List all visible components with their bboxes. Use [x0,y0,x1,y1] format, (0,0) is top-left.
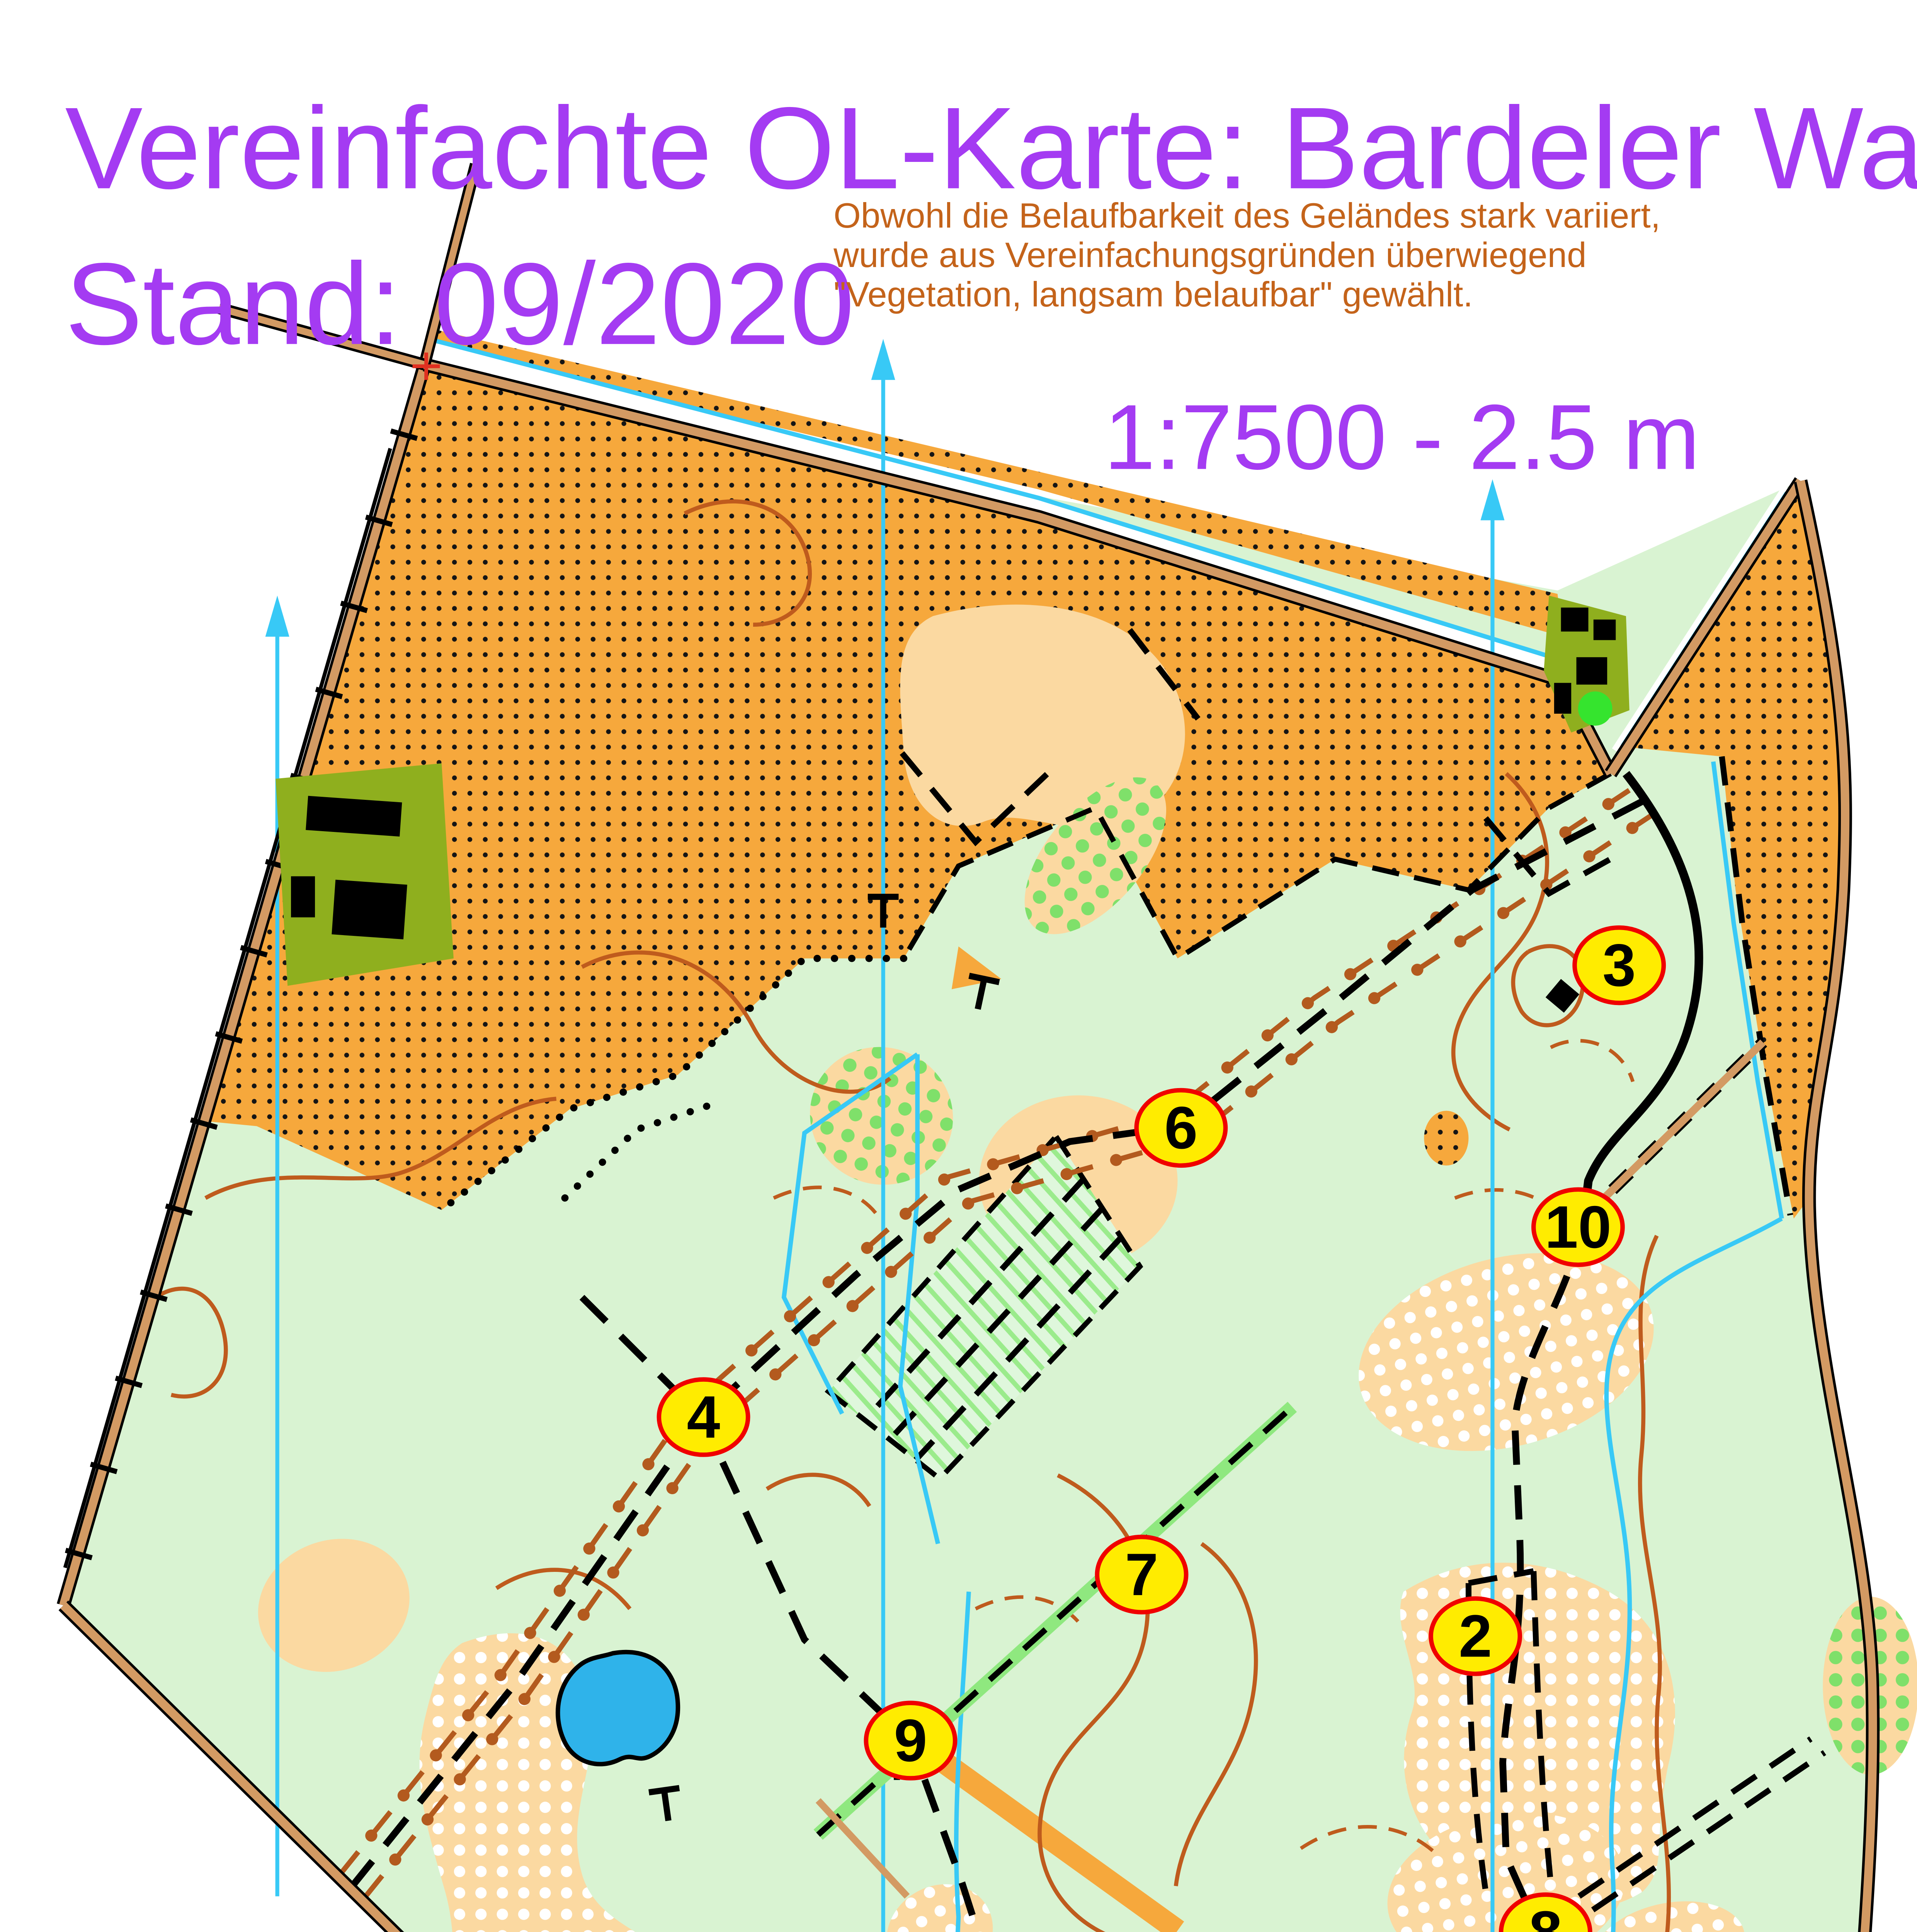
control-point-2: 2 [1431,1599,1520,1674]
control-number: 9 [894,1707,927,1774]
pond [558,1652,678,1764]
control-point-4: 4 [659,1379,748,1455]
control-number: 7 [1125,1541,1158,1608]
orienteering-map: 12345678910 Vereinfachte OL-Karte: Barde… [0,0,1917,1932]
control-number: 2 [1459,1603,1492,1670]
north-arrow [871,339,895,380]
map-note: Obwohl die Belaufbarkeit des Geländes st… [833,196,1660,314]
note-line: "Vegetation, langsam belaufbar" gewählt. [833,275,1473,314]
control-point-9: 9 [866,1703,955,1778]
control-point-10: 10 [1534,1189,1623,1265]
note-line: wurde aus Vereinfachungsgründen überwieg… [833,236,1586,275]
control-number: 4 [687,1384,720,1451]
page-title: Vereinfachte OL-Karte: Bardeler Wald [65,83,1917,213]
control-number: 3 [1602,932,1636,998]
stand-date: Stand: 09/2020 [65,238,854,369]
control-point-6: 6 [1136,1090,1225,1165]
control-number: 6 [1164,1094,1197,1161]
control-number: 8 [1529,1899,1562,1932]
control-number: 10 [1545,1194,1611,1260]
control-point-3: 3 [1575,928,1664,1003]
control-point-7: 7 [1097,1537,1186,1612]
map-sheet: 12345678910 Vereinfachte OL-Karte: Barde… [0,0,1917,1932]
scale-text: 1:7500 - 2.5 m [1104,385,1700,489]
north-arrow [265,595,289,636]
prominent-tree [1578,691,1613,726]
note-line: Obwohl die Belaufbarkeit des Geländes st… [833,196,1660,235]
